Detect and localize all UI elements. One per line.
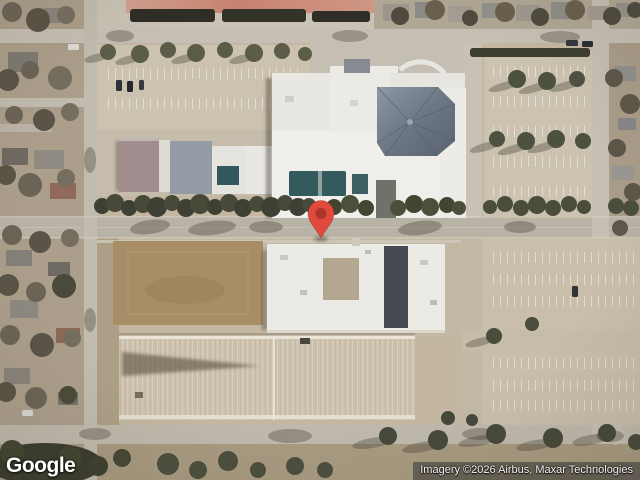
map-canvas[interactable]: Google Imagery ©2026 Airbus, Maxar Techn…: [0, 0, 640, 480]
pin-dot: [316, 208, 327, 219]
imagery-attribution: Imagery ©2026 Airbus, Maxar Technologies: [413, 462, 640, 480]
google-logo[interactable]: Google: [6, 454, 75, 478]
satellite-imagery: [0, 0, 640, 480]
